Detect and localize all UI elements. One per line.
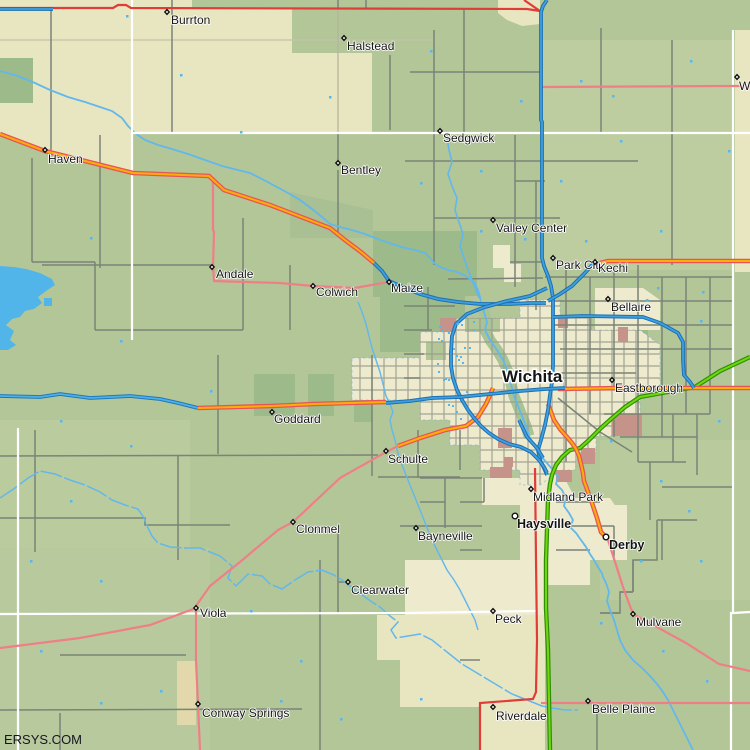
svg-text:Riverdale: Riverdale [496,709,547,723]
svg-text:Viola: Viola [200,606,227,620]
svg-text:Burrton: Burrton [171,13,210,27]
svg-text:Kechi: Kechi [598,261,628,275]
svg-text:Haysville: Haysville [517,517,571,531]
svg-text:Wichita: Wichita [502,367,563,386]
svg-text:Clonmel: Clonmel [296,522,340,536]
svg-text:Maize: Maize [391,281,423,295]
svg-text:Midland Park: Midland Park [533,490,604,504]
svg-text:Derby: Derby [609,538,644,552]
svg-text:Schulte: Schulte [388,452,428,466]
svg-text:Goddard: Goddard [274,412,321,426]
svg-text:Andale: Andale [216,267,254,281]
svg-text:Haven: Haven [48,152,83,166]
svg-text:Sedgwick: Sedgwick [443,131,495,145]
svg-text:Eastborough: Eastborough [615,381,683,395]
svg-text:Peck: Peck [495,612,523,626]
svg-text:Clearwater: Clearwater [351,583,409,597]
svg-text:Valley Center: Valley Center [496,221,567,235]
svg-text:Colwich: Colwich [316,285,358,299]
svg-text:Bentley: Bentley [341,163,381,177]
svg-text:Conway Springs: Conway Springs [202,706,289,720]
svg-text:Mulvane: Mulvane [636,615,682,629]
svg-text:Bayneville: Bayneville [418,529,473,543]
svg-text:Halstead: Halstead [347,39,394,53]
svg-text:ERSYS.COM: ERSYS.COM [4,732,82,747]
svg-text:Bellaire: Bellaire [611,300,651,314]
svg-text:Belle Plaine: Belle Plaine [592,702,656,716]
svg-text:W: W [739,79,750,93]
